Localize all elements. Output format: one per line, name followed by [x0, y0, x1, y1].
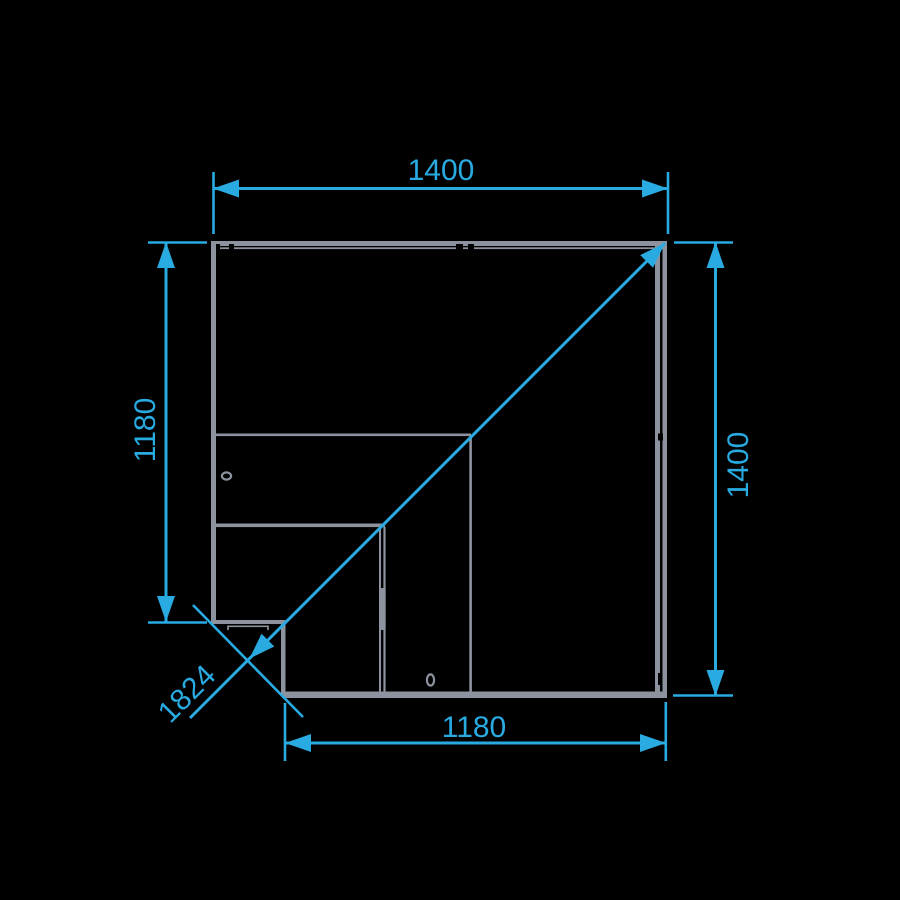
right-edge-joint-notch — [658, 673, 663, 685]
drawing-canvas: 1400 1180 1400 1180 — [0, 0, 900, 900]
dimension-label-right: 1400 — [722, 432, 755, 499]
bottom-edge-line — [282, 692, 667, 699]
corner-notch-horizontal-edge — [211, 620, 284, 624]
dimension-top: 1400 — [213, 154, 668, 234]
arrowhead-up — [707, 242, 725, 268]
handle-oval-bottom — [427, 674, 434, 685]
dimension-diagonal: 1824 — [152, 243, 665, 729]
arrowhead-down — [707, 670, 725, 696]
left-edge-line — [211, 241, 216, 622]
dimension-left: 1180 — [129, 242, 207, 623]
top-edge-joint-notch — [468, 244, 474, 250]
right-edge-joint-notch — [658, 434, 663, 441]
arrowhead-right — [640, 734, 666, 752]
arrowhead-left — [285, 734, 311, 752]
top-edge-joint-notch — [456, 244, 463, 250]
top-edge-outer-line — [211, 241, 667, 246]
recessed-panel-line — [228, 626, 268, 630]
arrowhead-down — [157, 596, 175, 622]
top-edge-joint-notch — [229, 244, 234, 250]
dimension-label-bottom: 1180 — [442, 711, 507, 744]
internal-divider-joint — [379, 588, 386, 630]
right-edge-outer-line — [655, 241, 660, 698]
arrowhead-right — [642, 180, 668, 198]
corner-counter-plan-drawing: 1400 1180 1400 1180 — [0, 0, 900, 900]
top-edge-inner-line — [213, 247, 665, 249]
arrowhead-up — [157, 242, 175, 268]
right-edge-inner-line — [663, 241, 668, 698]
dimension-right: 1400 — [673, 242, 755, 696]
dimension-label-diagonal: 1824 — [152, 659, 223, 730]
corner-notch-vertical-edge — [281, 620, 286, 695]
internal-shelf-line-lower — [216, 524, 385, 528]
arrowhead-left — [213, 180, 239, 198]
handle-oval-left — [222, 472, 231, 479]
internal-shelf-line-upper — [216, 434, 471, 437]
dimension-label-left: 1180 — [129, 398, 162, 463]
dimension-bottom: 1180 — [285, 702, 666, 761]
internal-divider-line-right — [469, 435, 472, 693]
dimension-label-top: 1400 — [408, 154, 475, 187]
